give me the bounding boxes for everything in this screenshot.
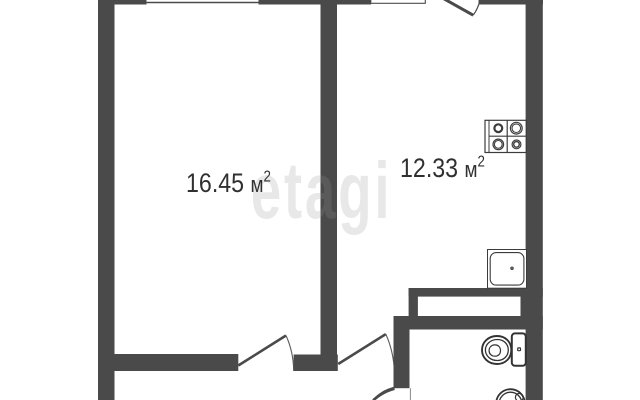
svg-text:12.33 м2: 12.33 м2 xyxy=(400,153,485,183)
svg-text:16.45 м2: 16.45 м2 xyxy=(186,168,271,198)
svg-text:etagi: etagi xyxy=(251,146,393,236)
